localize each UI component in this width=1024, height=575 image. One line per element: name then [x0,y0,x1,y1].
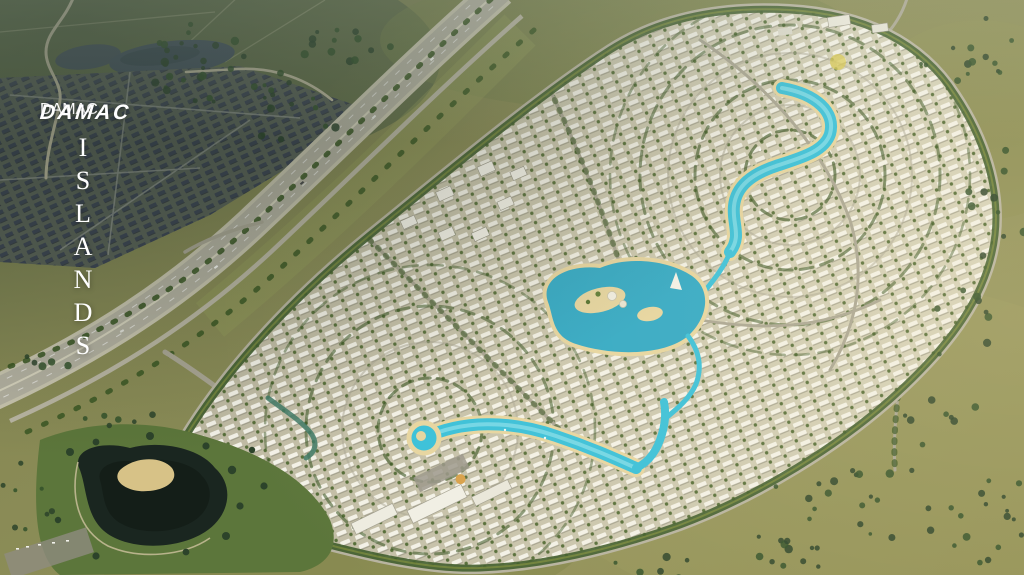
islands-letter: N [74,263,93,296]
aerial-masterplan-render: DAMAC DAMAC I S L A N D S [0,0,1024,575]
islands-wordmark: I S L A N D S [66,131,100,362]
damac-wordmark: DAMAC [39,101,132,125]
islands-letter: S [76,164,90,197]
lighting-overlay [0,0,1024,575]
islands-letter: I [79,131,88,164]
islands-letter: A [74,230,93,263]
islands-letter: S [76,329,90,362]
islands-letter: L [75,197,91,230]
islands-letter: D [74,296,93,329]
masterplan-scene [0,0,1024,575]
